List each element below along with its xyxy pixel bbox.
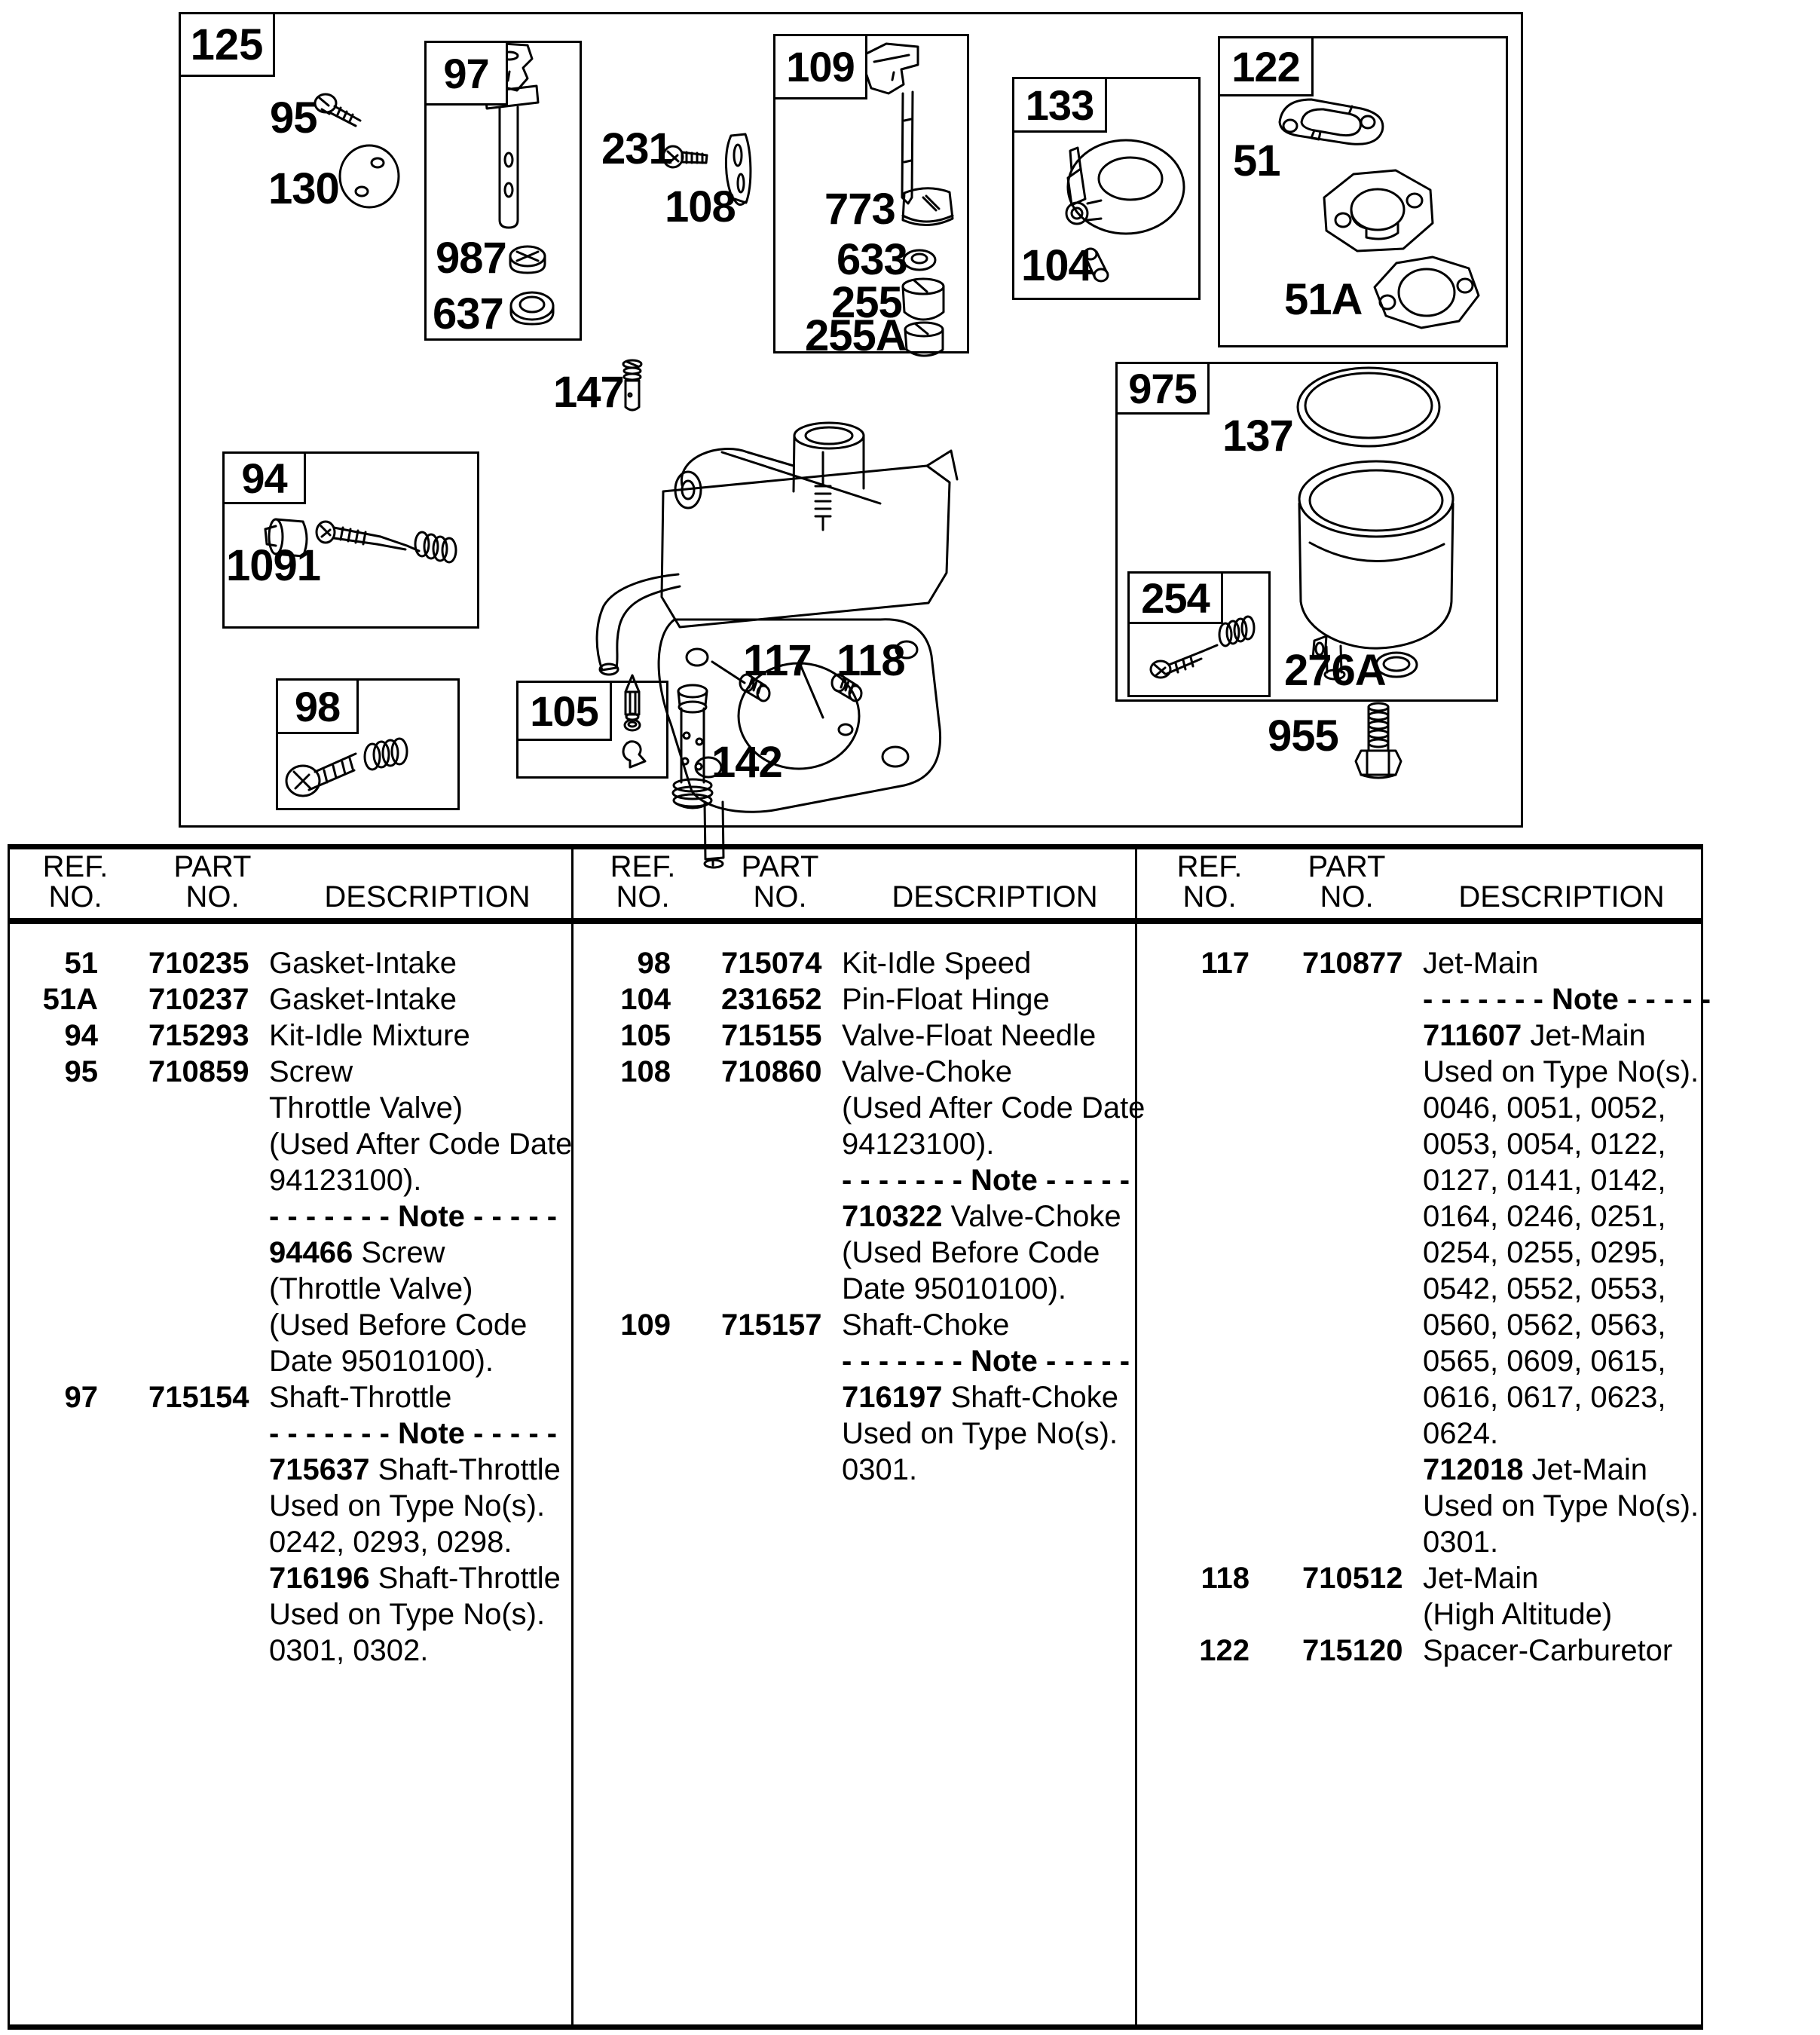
group-box-94-label: 94: [222, 451, 306, 504]
callout-137: 137: [1222, 415, 1293, 458]
description-cell: Used on Type No(s).: [262, 1488, 569, 1524]
part-no-cell: 710235: [148, 945, 262, 981]
part-no-cell: 715074: [721, 945, 834, 981]
description-text: Valve-Float Needle: [842, 1019, 1096, 1052]
table-right-border: [1701, 844, 1703, 2030]
description-cell: - - - - - - - Note - - - - -: [262, 1415, 569, 1452]
description-text: 0565, 0609, 0615,: [1423, 1345, 1666, 1378]
callout-117: 117: [743, 639, 812, 683]
description-text: 0301, 0302.: [269, 1634, 428, 1667]
part-header: PART: [156, 852, 269, 882]
description-text: 0053, 0054, 0122,: [1423, 1128, 1666, 1161]
table-row: 118710512Jet-Main: [1136, 1560, 1699, 1596]
ref-no-cell: 94: [8, 1017, 98, 1054]
description-text: 0560, 0562, 0563,: [1423, 1308, 1666, 1342]
group-box-975-label: 975: [1115, 362, 1210, 415]
table-row: 0127, 0141, 0142,: [1136, 1162, 1699, 1198]
ref-no-cell: 95: [8, 1054, 98, 1090]
description-cell: Used on Type No(s).: [1415, 1488, 1699, 1524]
description-text: Shaft-Choke: [842, 1308, 1009, 1342]
description-cell: Used on Type No(s).: [262, 1596, 569, 1633]
description-text: 712018: [1423, 1453, 1523, 1486]
description-cell: (Used Before Code: [262, 1307, 569, 1343]
description-cell: (High Altitude): [1415, 1596, 1699, 1633]
table-row: 0624.: [1136, 1415, 1699, 1452]
description-cell: (Used After Code Date: [834, 1090, 1145, 1126]
description-text: (Throttle Valve): [269, 1272, 473, 1305]
table-row: Date 95010100).: [8, 1343, 569, 1379]
description-cell: Shaft-Throttle: [262, 1379, 569, 1415]
ref-header: REF.: [8, 852, 143, 882]
table-row: Used on Type No(s).: [8, 1596, 569, 1633]
description-text: Gasket-Intake: [269, 983, 457, 1016]
table-row: 716197 Shaft-Choke: [580, 1379, 1133, 1415]
table-row: 716196 Shaft-Throttle: [8, 1560, 569, 1596]
table-row: 95710859Screw: [8, 1054, 569, 1090]
description-text: 0301.: [1423, 1525, 1498, 1559]
table-row: 104231652Pin-Float Hinge: [580, 981, 1133, 1017]
description-text: 0254, 0255, 0295,: [1423, 1236, 1666, 1269]
description-text: Used on Type No(s).: [269, 1489, 545, 1522]
table-row: - - - - - - - Note - - - - -: [580, 1162, 1133, 1198]
part-no-cell: 715120: [1302, 1633, 1415, 1669]
table-row: (Used After Code Date: [8, 1126, 569, 1162]
callout-1091: 1091: [226, 544, 320, 588]
group-box-98-label: 98: [276, 678, 359, 734]
ref-header: REF.: [575, 852, 711, 882]
description-cell: (Throttle Valve): [262, 1271, 569, 1307]
table-row: 0301.: [580, 1452, 1133, 1488]
description-text: 715637: [269, 1453, 369, 1486]
table-row: 51710235Gasket-Intake: [8, 945, 569, 981]
description-text: Kit-Idle Mixture: [269, 1019, 470, 1052]
description-cell: 94123100).: [262, 1162, 569, 1198]
description-text: Kit-Idle Speed: [842, 947, 1031, 980]
table-row: 98715074Kit-Idle Speed: [580, 945, 1133, 981]
description-text: - - - - - - - Note - - - - -: [269, 1200, 557, 1233]
description-cell: Kit-Idle Speed: [834, 945, 1133, 981]
callout-276A: 276A: [1284, 649, 1386, 693]
description-text: (High Altitude): [1423, 1598, 1612, 1631]
description-text: Valve-Choke: [842, 1055, 1012, 1088]
description-text: Used on Type No(s).: [269, 1598, 545, 1631]
desc-header-spacer: [837, 852, 1146, 882]
description-text: Throttle Valve): [269, 1091, 463, 1125]
description-text: 711607: [1423, 1019, 1522, 1052]
table-row: Throttle Valve): [8, 1090, 569, 1126]
table-row: 0046, 0051, 0052,: [1136, 1090, 1699, 1126]
description-text: Valve-Choke: [942, 1200, 1121, 1233]
description-text: Shaft-Throttle: [269, 1381, 451, 1414]
group-box-125: 125: [179, 12, 275, 77]
ref-no-cell: 117: [1136, 945, 1250, 981]
table-row: - - - - - - - Note - - - - -: [1136, 981, 1699, 1017]
table-row: 0542, 0552, 0553,: [1136, 1271, 1699, 1307]
description-cell: 0616, 0617, 0623,: [1415, 1379, 1699, 1415]
description-cell: Pin-Float Hinge: [834, 981, 1133, 1017]
desc-header-spacer: [269, 852, 578, 882]
part-header: PART: [723, 852, 837, 882]
description-cell: 0127, 0141, 0142,: [1415, 1162, 1699, 1198]
table-header-col2: REF.PART NO.NO.DESCRIPTION: [575, 852, 1146, 912]
table-row: 712018 Jet-Main: [1136, 1452, 1699, 1488]
callout-130: 130: [268, 167, 339, 211]
description-cell: (Used After Code Date: [262, 1126, 572, 1162]
description-text: 0542, 0552, 0553,: [1423, 1272, 1666, 1305]
table-row: 0560, 0562, 0563,: [1136, 1307, 1699, 1343]
description-text: - - - - - - - Note - - - - -: [842, 1345, 1130, 1378]
part-no-cell: 710859: [148, 1054, 262, 1090]
group-box-122-label: 122: [1218, 36, 1314, 96]
ref-no-cell: 109: [580, 1307, 671, 1343]
table-row: 0301.: [1136, 1524, 1699, 1560]
description-text: 94466: [269, 1236, 353, 1269]
ref-no-cell: 51: [8, 945, 98, 981]
table-header-rule: [8, 918, 1703, 924]
desc-header-spacer: [1403, 852, 1712, 882]
table-row: (Used Before Code: [8, 1307, 569, 1343]
callout-231: 231: [601, 127, 672, 171]
description-cell: 712018 Jet-Main: [1415, 1452, 1699, 1488]
table-row: 122715120Spacer-Carburetor: [1136, 1633, 1699, 1669]
group-box-254: 254: [1127, 571, 1271, 697]
description-cell: (Used Before Code: [834, 1235, 1133, 1271]
ref-header: REF.: [1142, 852, 1277, 882]
table-row: 97715154Shaft-Throttle: [8, 1379, 569, 1415]
description-text: Used on Type No(s).: [842, 1417, 1118, 1450]
callout-142: 142: [711, 741, 782, 785]
description-text: Jet-Main: [1423, 1562, 1538, 1595]
group-box-105: 105: [516, 681, 668, 779]
description-cell: 711607 Jet-Main: [1415, 1017, 1699, 1054]
description-text: 0046, 0051, 0052,: [1423, 1091, 1666, 1125]
description-text: Used on Type No(s).: [1423, 1489, 1699, 1522]
desc-header: DESCRIPTION: [1403, 882, 1712, 912]
part-no-cell: 715157: [721, 1307, 834, 1343]
description-cell: Date 95010100).: [262, 1343, 569, 1379]
description-text: Jet-Main: [1522, 1019, 1646, 1052]
description-cell: 710322 Valve-Choke: [834, 1198, 1133, 1235]
description-cell: Kit-Idle Mixture: [262, 1017, 569, 1054]
group-box-109-label: 109: [773, 34, 867, 99]
description-text: Gasket-Intake: [269, 947, 457, 980]
description-cell: Valve-Choke: [834, 1054, 1133, 1090]
table-row: 710322 Valve-Choke: [580, 1198, 1133, 1235]
description-cell: 0560, 0562, 0563,: [1415, 1307, 1699, 1343]
ref-no-cell: 51A: [8, 981, 98, 1017]
description-cell: Date 95010100).: [834, 1271, 1133, 1307]
callout-51: 51: [1233, 139, 1280, 183]
part-no-cell: 715154: [148, 1379, 262, 1415]
part-header: NO.: [723, 882, 837, 912]
part-no-cell: 710237: [148, 981, 262, 1017]
table-header-col3: REF.PART NO.NO.DESCRIPTION: [1142, 852, 1712, 912]
ref-header: NO.: [1142, 882, 1277, 912]
table-divider-1: [571, 844, 574, 2030]
part-no-cell: 715155: [721, 1017, 834, 1054]
description-cell: - - - - - - - Note - - - - -: [262, 1198, 569, 1235]
description-text: 710322: [842, 1200, 942, 1233]
part-no-cell: 710512: [1302, 1560, 1415, 1596]
description-text: - - - - - - - Note - - - - -: [1423, 983, 1711, 1016]
desc-header: DESCRIPTION: [837, 882, 1146, 912]
table-row: - - - - - - - Note - - - - -: [8, 1415, 569, 1452]
table-bottom-rule: [8, 2024, 1703, 2030]
description-text: Date 95010100).: [842, 1272, 1066, 1305]
description-cell: 715637 Shaft-Throttle: [262, 1452, 569, 1488]
description-text: Jet-Main: [1423, 947, 1538, 980]
description-cell: - - - - - - - Note - - - - -: [1415, 981, 1711, 1017]
callout-987: 987: [436, 237, 506, 280]
table-row: 94123100).: [8, 1162, 569, 1198]
table-column-2: 98715074Kit-Idle Speed104231652Pin-Float…: [580, 945, 1133, 1488]
description-cell: 0164, 0246, 0251,: [1415, 1198, 1699, 1235]
table-row: 94123100).: [580, 1126, 1133, 1162]
group-box-98: 98: [276, 678, 460, 810]
part-no-cell: 710860: [721, 1054, 834, 1090]
ref-no-cell: 108: [580, 1054, 671, 1090]
description-cell: 94466 Screw: [262, 1235, 569, 1271]
callout-255A: 255A: [805, 314, 907, 358]
table-row: Used on Type No(s).: [580, 1415, 1133, 1452]
table-row: 0164, 0246, 0251,: [1136, 1198, 1699, 1235]
description-cell: Shaft-Choke: [834, 1307, 1133, 1343]
ref-no-cell: 97: [8, 1379, 98, 1415]
ref-no-cell: 104: [580, 981, 671, 1017]
description-text: Jet-Main: [1523, 1453, 1647, 1486]
table-row: 0565, 0609, 0615,: [1136, 1343, 1699, 1379]
callout-95: 95: [270, 96, 317, 140]
description-text: 0127, 0141, 0142,: [1423, 1164, 1666, 1197]
description-text: Screw: [269, 1055, 353, 1088]
description-text: 0242, 0293, 0298.: [269, 1525, 512, 1559]
description-cell: 0301.: [1415, 1524, 1699, 1560]
description-cell: Valve-Float Needle: [834, 1017, 1133, 1054]
description-cell: 94123100).: [834, 1126, 1133, 1162]
description-cell: 0242, 0293, 0298.: [262, 1524, 569, 1560]
ref-header: NO.: [8, 882, 143, 912]
description-text: 0616, 0617, 0623,: [1423, 1381, 1666, 1414]
description-cell: - - - - - - - Note - - - - -: [834, 1343, 1133, 1379]
table-row: - - - - - - - Note - - - - -: [580, 1343, 1133, 1379]
description-cell: - - - - - - - Note - - - - -: [834, 1162, 1133, 1198]
table-column-3: 117710877Jet-Main- - - - - - - Note - - …: [1136, 945, 1699, 1669]
description-cell: 0254, 0255, 0295,: [1415, 1235, 1699, 1271]
ref-no-cell: 98: [580, 945, 671, 981]
table-row: 51A710237Gasket-Intake: [8, 981, 569, 1017]
part-header: NO.: [1290, 882, 1403, 912]
part-no-cell: 231652: [721, 981, 834, 1017]
description-text: 0624.: [1423, 1417, 1498, 1450]
group-box-133-label: 133: [1012, 77, 1107, 133]
group-box-97-label: 97: [424, 41, 508, 106]
description-cell: 0046, 0051, 0052,: [1415, 1090, 1699, 1126]
ref-no-cell: 105: [580, 1017, 671, 1054]
table-row: 109715157Shaft-Choke: [580, 1307, 1133, 1343]
group-box-254-label: 254: [1127, 571, 1223, 624]
description-cell: Jet-Main: [1415, 945, 1699, 981]
description-text: Spacer-Carburetor: [1423, 1634, 1672, 1667]
table-row: 94466 Screw: [8, 1235, 569, 1271]
ref-no-cell: 122: [1136, 1633, 1250, 1669]
callout-104: 104: [1021, 244, 1092, 288]
table-row: 108710860Valve-Choke: [580, 1054, 1133, 1090]
table-row: 0254, 0255, 0295,: [1136, 1235, 1699, 1271]
table-row: (Used After Code Date: [580, 1090, 1133, 1126]
part-no-cell: 715293: [148, 1017, 262, 1054]
table-row: (High Altitude): [1136, 1596, 1699, 1633]
callout-118: 118: [837, 639, 905, 683]
description-cell: 716197 Shaft-Choke: [834, 1379, 1133, 1415]
part-header: PART: [1290, 852, 1403, 882]
table-row: 0616, 0617, 0623,: [1136, 1379, 1699, 1415]
description-cell: Throttle Valve): [262, 1090, 569, 1126]
table-row: 0053, 0054, 0122,: [1136, 1126, 1699, 1162]
description-text: 0301.: [842, 1453, 917, 1486]
description-text: (Used After Code Date: [842, 1091, 1145, 1125]
ref-no-cell: 118: [1136, 1560, 1250, 1596]
table-row: 105715155Valve-Float Needle: [580, 1017, 1133, 1054]
description-cell: Screw: [262, 1054, 569, 1090]
table-row: 715637 Shaft-Throttle: [8, 1452, 569, 1488]
description-text: Screw: [353, 1236, 445, 1269]
description-text: Used on Type No(s).: [1423, 1055, 1699, 1088]
table-row: 0242, 0293, 0298.: [8, 1524, 569, 1560]
part-header: NO.: [156, 882, 269, 912]
description-text: Shaft-Choke: [942, 1381, 1118, 1414]
description-text: 716196: [269, 1562, 369, 1595]
desc-header: DESCRIPTION: [269, 882, 578, 912]
description-cell: Used on Type No(s).: [1415, 1054, 1699, 1090]
description-cell: 0301.: [834, 1452, 1133, 1488]
description-cell: Used on Type No(s).: [834, 1415, 1133, 1452]
description-cell: Gasket-Intake: [262, 945, 569, 981]
description-text: 0164, 0246, 0251,: [1423, 1200, 1666, 1233]
description-text: 94123100).: [842, 1128, 994, 1161]
callout-773: 773: [824, 188, 895, 231]
table-top-rule: [8, 844, 1703, 849]
group-box-125-label: 125: [191, 20, 264, 70]
description-text: Shaft-Throttle: [369, 1562, 560, 1595]
table-row: (Used Before Code: [580, 1235, 1133, 1271]
table-row: 0301, 0302.: [8, 1633, 569, 1669]
group-box-105-label: 105: [516, 681, 612, 741]
part-no-cell: 710877: [1302, 945, 1415, 981]
callout-637: 637: [433, 292, 503, 336]
callout-108: 108: [665, 185, 736, 229]
callout-51A: 51A: [1284, 278, 1362, 322]
description-text: Date 95010100).: [269, 1345, 494, 1378]
group-box-94: 94: [222, 451, 479, 629]
table-row: 94715293Kit-Idle Mixture: [8, 1017, 569, 1054]
table-header-col1: REF.PART NO.NO.DESCRIPTION: [8, 852, 578, 912]
description-text: Shaft-Throttle: [369, 1453, 560, 1486]
description-text: Pin-Float Hinge: [842, 983, 1050, 1016]
table-row: - - - - - - - Note - - - - -: [8, 1198, 569, 1235]
description-text: - - - - - - - Note - - - - -: [842, 1164, 1130, 1197]
table-row: Used on Type No(s).: [8, 1488, 569, 1524]
callout-633: 633: [837, 238, 907, 282]
description-cell: Spacer-Carburetor: [1415, 1633, 1699, 1669]
description-text: (Used Before Code: [842, 1236, 1100, 1269]
description-cell: Gasket-Intake: [262, 981, 569, 1017]
table-row: 711607 Jet-Main: [1136, 1017, 1699, 1054]
table-row: Used on Type No(s).: [1136, 1488, 1699, 1524]
callout-147: 147: [553, 371, 624, 415]
description-cell: 0624.: [1415, 1415, 1699, 1452]
table-row: 117710877Jet-Main: [1136, 945, 1699, 981]
callout-955: 955: [1268, 715, 1338, 758]
description-cell: Jet-Main: [1415, 1560, 1699, 1596]
description-cell: 716196 Shaft-Throttle: [262, 1560, 569, 1596]
description-text: (Used After Code Date: [269, 1128, 572, 1161]
table-row: (Throttle Valve): [8, 1271, 569, 1307]
ref-header: NO.: [575, 882, 711, 912]
description-cell: 0301, 0302.: [262, 1633, 569, 1669]
description-text: - - - - - - - Note - - - - -: [269, 1417, 557, 1450]
description-cell: 0053, 0054, 0122,: [1415, 1126, 1699, 1162]
table-row: Used on Type No(s).: [1136, 1054, 1699, 1090]
group-box-122: 122: [1218, 36, 1508, 347]
description-cell: 0542, 0552, 0553,: [1415, 1271, 1699, 1307]
description-text: 716197: [842, 1381, 942, 1414]
description-text: 94123100).: [269, 1164, 421, 1197]
table-column-1: 51710235Gasket-Intake51A710237Gasket-Int…: [8, 945, 569, 1669]
table-row: Date 95010100).: [580, 1271, 1133, 1307]
description-text: (Used Before Code: [269, 1308, 527, 1342]
description-cell: 0565, 0609, 0615,: [1415, 1343, 1699, 1379]
